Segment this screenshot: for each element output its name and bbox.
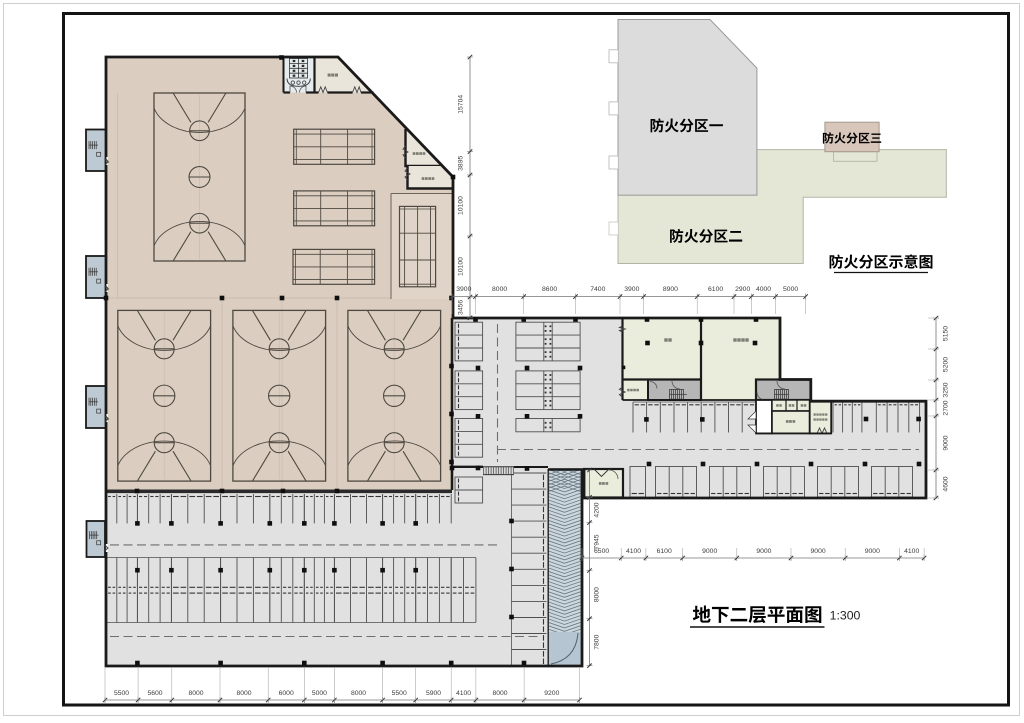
svg-text:2700: 2700 [943, 400, 950, 415]
svg-text:5500: 5500 [114, 690, 129, 697]
svg-text:9000: 9000 [811, 548, 826, 555]
svg-text:7800: 7800 [594, 634, 601, 649]
svg-text:6100: 6100 [708, 286, 723, 293]
svg-text:5000: 5000 [312, 690, 327, 697]
svg-text:9000: 9000 [756, 548, 771, 555]
svg-text:5500: 5500 [392, 690, 407, 697]
svg-text:9000: 9000 [865, 548, 880, 555]
svg-text:5000: 5000 [783, 286, 798, 293]
svg-text:5150: 5150 [943, 326, 950, 341]
svg-text:3895: 3895 [458, 156, 465, 171]
svg-text:9000: 9000 [702, 548, 717, 555]
svg-text:10100: 10100 [458, 196, 465, 215]
svg-text:8000: 8000 [594, 587, 601, 602]
svg-text:6000: 6000 [279, 690, 294, 697]
svg-text:2900: 2900 [735, 286, 750, 293]
svg-text:3900: 3900 [624, 286, 639, 293]
svg-text:3456: 3456 [458, 300, 465, 315]
svg-text:8000: 8000 [492, 690, 507, 697]
svg-text:5200: 5200 [943, 357, 950, 372]
svg-text:6100: 6100 [657, 548, 672, 555]
svg-text:4600: 4600 [943, 476, 950, 491]
svg-text:15704: 15704 [458, 95, 465, 114]
svg-text:4100: 4100 [456, 690, 471, 697]
svg-text:8000: 8000 [236, 690, 251, 697]
svg-text:8000: 8000 [492, 286, 507, 293]
svg-text:5600: 5600 [147, 690, 162, 697]
svg-text:1:300: 1:300 [830, 608, 861, 622]
svg-text:7400: 7400 [590, 286, 605, 293]
svg-text:5900: 5900 [426, 690, 441, 697]
svg-text:8900: 8900 [663, 286, 678, 293]
svg-text:8600: 8600 [542, 286, 557, 293]
svg-text:3900: 3900 [456, 286, 471, 293]
svg-text:4200: 4200 [594, 502, 601, 517]
svg-text:4100: 4100 [904, 548, 919, 555]
svg-text:9200: 9200 [544, 690, 559, 697]
svg-text:9000: 9000 [943, 435, 950, 450]
svg-text:8000: 8000 [351, 690, 366, 697]
svg-text:3250: 3250 [943, 382, 950, 397]
svg-text:10100: 10100 [458, 257, 465, 276]
svg-text:7945: 7945 [594, 534, 601, 549]
svg-text:4100: 4100 [626, 548, 641, 555]
svg-text:4000: 4000 [756, 286, 771, 293]
svg-text:8000: 8000 [188, 690, 203, 697]
